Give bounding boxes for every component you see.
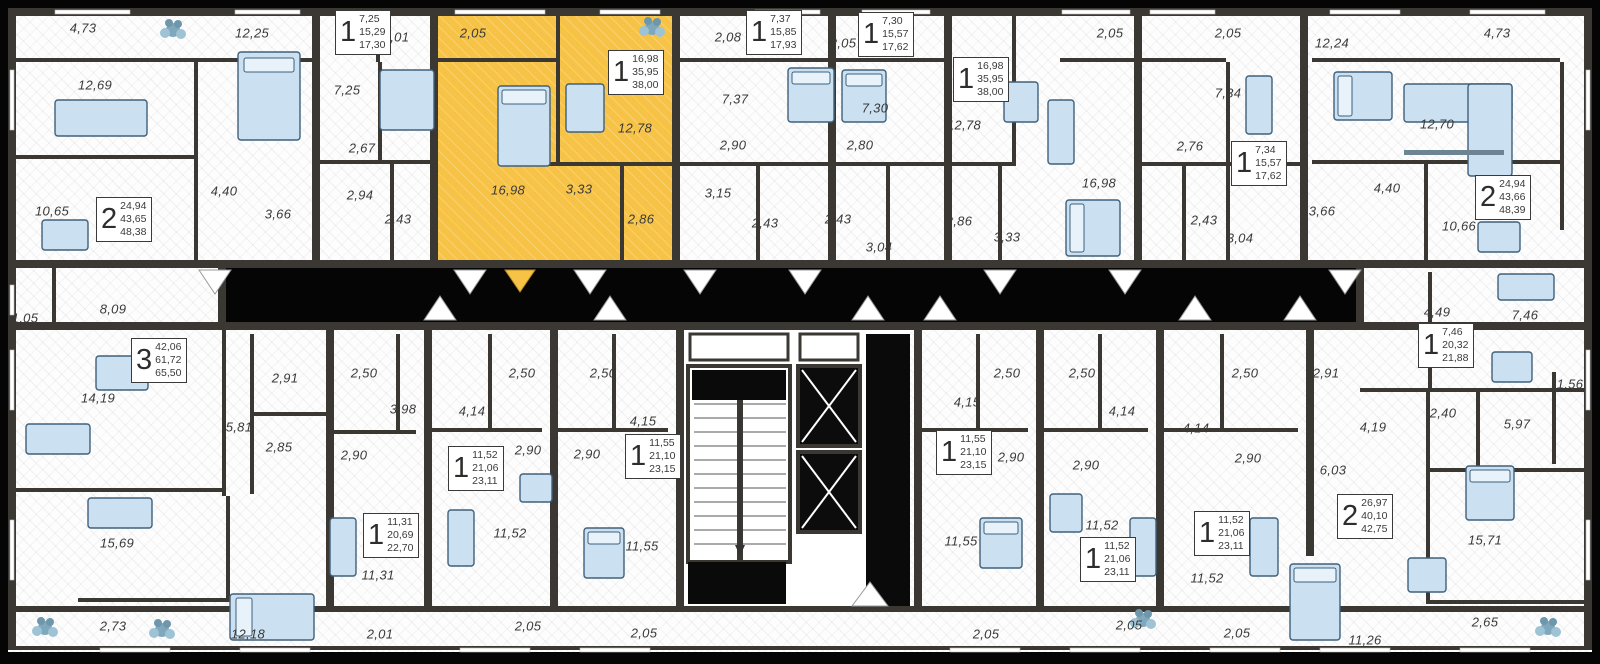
room-area-label: 2,05 xyxy=(515,619,542,634)
area-values: 7,3715,8517,93 xyxy=(770,13,796,52)
room-area-label: 2,05 xyxy=(1224,626,1251,641)
room-area-label: 4,14 xyxy=(1109,404,1136,419)
room-area-label: 11,52 xyxy=(1190,571,1223,586)
room-area-label: 2,90 xyxy=(515,443,542,458)
room-area-label: 7,25 xyxy=(334,83,361,98)
room-area-label: 8,09 xyxy=(100,302,127,317)
room-area-label: 3,98 xyxy=(390,402,417,417)
room-count: 2 xyxy=(101,205,117,234)
selected-apartment-stat-box[interactable]: 116,9835,9538,00 xyxy=(608,50,664,95)
room-area-label: 7,34 xyxy=(1215,86,1242,101)
room-area-label: 12,78 xyxy=(947,118,981,133)
room-count: 1 xyxy=(1423,331,1439,360)
room-count: 1 xyxy=(958,65,974,94)
room-area-label: 6,03 xyxy=(1320,463,1347,478)
room-count: 1 xyxy=(368,521,384,550)
apartment-stat-box[interactable]: 111,5221,0623,11 xyxy=(1080,537,1136,582)
room-area-label: 4,73 xyxy=(70,21,97,36)
room-count: 1 xyxy=(941,438,957,467)
room-area-label: 11,26 xyxy=(1348,633,1381,648)
room-area-label: 3,33 xyxy=(994,230,1021,245)
room-area-label: 7,30 xyxy=(862,101,889,116)
room-count: 1 xyxy=(1199,519,1215,548)
room-area-label: 2,05 xyxy=(460,26,487,41)
room-area-label: 2,05 xyxy=(1215,26,1242,41)
room-area-label: 2,90 xyxy=(574,447,601,462)
room-area-label: 2,85 xyxy=(266,440,293,455)
room-count: 1 xyxy=(630,442,646,471)
room-area-label: 2,86 xyxy=(946,214,973,229)
room-area-label: 4,19 xyxy=(1360,420,1387,435)
area-values: 7,3015,5717,62 xyxy=(882,15,908,54)
room-area-label: 4,73 xyxy=(1484,26,1511,41)
room-area-label: 2,80 xyxy=(847,138,874,153)
room-area-label: 12,70 xyxy=(1420,117,1454,132)
room-area-label: 11,55 xyxy=(625,539,658,554)
room-area-label: 2,08 xyxy=(715,30,742,45)
room-area-label: 4,40 xyxy=(211,184,238,199)
room-count: 1 xyxy=(1236,149,1252,178)
room-area-label: 4,49 xyxy=(1424,305,1451,320)
room-area-label: 4,14 xyxy=(459,404,486,419)
room-area-label: 2,43 xyxy=(385,212,412,227)
area-values: 16,9835,9538,00 xyxy=(632,53,658,92)
room-area-label: 14,19 xyxy=(81,391,115,406)
room-area-label: 2,67 xyxy=(349,141,376,156)
room-area-label: 2,90 xyxy=(1235,451,1262,466)
room-count: 1 xyxy=(453,454,469,483)
room-area-label: 1,56 xyxy=(1557,377,1584,392)
area-values: 24,9443,6648,39 xyxy=(1499,178,1525,217)
room-area-label: 3,33 xyxy=(566,182,593,197)
room-area-label: 2,50 xyxy=(1069,366,1096,381)
room-area-label: 11,55 xyxy=(944,534,977,549)
room-area-label: 12,24 xyxy=(1315,36,1349,51)
room-area-label: 4,15 xyxy=(954,395,981,410)
apartment-stat-box[interactable]: 17,2515,2917,30 xyxy=(335,10,391,55)
area-values: 11,5521,1023,15 xyxy=(960,433,986,472)
room-area-label: 5,81 xyxy=(226,420,253,435)
room-area-label: 2,50 xyxy=(1232,366,1259,381)
room-area-label: 3,15 xyxy=(705,186,732,201)
area-values: 11,5221,0623,11 xyxy=(1104,540,1130,579)
apartment-stat-box[interactable]: 111,3120,6922,70 xyxy=(363,513,419,558)
apartment-stat-box[interactable]: 111,5521,1023,15 xyxy=(625,434,681,479)
area-values: 16,9835,9538,00 xyxy=(977,60,1003,99)
apartment-stat-box[interactable]: 17,4620,3221,88 xyxy=(1418,323,1474,368)
apartment-stat-box[interactable]: 17,3015,5717,62 xyxy=(858,12,914,57)
room-area-label: 2,90 xyxy=(720,138,747,153)
room-area-label: 2,90 xyxy=(341,448,368,463)
room-area-label: 12,25 xyxy=(235,26,269,41)
room-area-label: 3,04 xyxy=(1227,231,1254,246)
room-area-label: 2,94 xyxy=(347,188,374,203)
room-count: 1 xyxy=(863,20,879,49)
area-values: 11,5521,1023,15 xyxy=(649,437,675,476)
room-area-label: 2,76 xyxy=(1177,139,1204,154)
room-area-label: 11,52 xyxy=(1085,518,1118,533)
room-area-label: 2,91 xyxy=(1313,366,1340,381)
room-area-label: 2,43 xyxy=(752,216,779,231)
floor-plan: 4,7312,6910,6512,252,017,252,672,943,662… xyxy=(0,0,1600,664)
room-area-label: 2,90 xyxy=(1073,458,1100,473)
room-area-label: 2,05 xyxy=(631,626,658,641)
area-values: 42,0661,7265,50 xyxy=(155,341,181,380)
room-area-label: 4,40 xyxy=(1374,181,1401,196)
room-area-label: 2,86 xyxy=(628,212,655,227)
apartment-stat-box[interactable]: 224,9443,6648,39 xyxy=(1475,175,1531,220)
apartment-stat-box[interactable]: 17,3415,5717,62 xyxy=(1231,141,1287,186)
room-area-label: 2,50 xyxy=(590,366,617,381)
room-area-label: 12,69 xyxy=(78,78,112,93)
room-area-label: 12,18 xyxy=(231,627,265,642)
room-area-label: 2,05 xyxy=(1097,26,1124,41)
room-area-label: 16,98 xyxy=(491,183,525,198)
apartment-stat-box[interactable]: 17,3715,8517,93 xyxy=(746,10,802,55)
room-area-label: 15,69 xyxy=(100,536,134,551)
room-area-label: 3,66 xyxy=(265,207,292,222)
room-count: 2 xyxy=(1342,502,1358,531)
room-area-label: 2,50 xyxy=(509,366,536,381)
room-count: 1 xyxy=(340,18,356,47)
labels-layer: 4,7312,6910,6512,252,017,252,672,943,662… xyxy=(0,0,1600,664)
room-area-label: 12,78 xyxy=(618,121,652,136)
room-area-label: 7,46 xyxy=(1512,308,1539,323)
room-area-label: 10,66 xyxy=(1442,219,1476,234)
area-values: 11,5221,0623,11 xyxy=(472,449,498,488)
apartment-stat-box[interactable]: 224,9443,6548,38 xyxy=(96,197,152,242)
room-count: 1 xyxy=(1085,545,1101,574)
room-count: 1 xyxy=(613,58,629,87)
apartment-stat-box[interactable]: 342,0661,7265,50 xyxy=(131,338,187,383)
area-values: 26,9740,1042,75 xyxy=(1361,497,1387,536)
room-area-label: 2,91 xyxy=(272,371,299,386)
room-count: 3 xyxy=(136,346,152,375)
room-area-label: 2,50 xyxy=(994,366,1021,381)
area-values: 24,9443,6548,38 xyxy=(120,200,146,239)
room-area-label: 15,71 xyxy=(1468,533,1502,548)
area-values: 7,3415,5717,62 xyxy=(1255,144,1281,183)
room-area-label: 11,31 xyxy=(361,568,394,583)
room-area-label: 2,90 xyxy=(998,450,1025,465)
room-area-label: 10,65 xyxy=(35,204,69,219)
room-count: 2 xyxy=(1480,183,1496,212)
room-area-label: 16,98 xyxy=(1082,176,1116,191)
area-values: 7,4620,3221,88 xyxy=(1442,326,1468,365)
room-area-label: 4,14 xyxy=(1183,421,1210,436)
area-values: 11,3120,6922,70 xyxy=(387,516,413,555)
room-area-label: 3,04 xyxy=(866,240,893,255)
apartment-stat-box[interactable]: 116,9835,9538,00 xyxy=(953,57,1009,102)
room-area-label: 2,40 xyxy=(1430,406,1457,421)
room-area-label: 2,43 xyxy=(825,212,852,227)
apartment-stat-box[interactable]: 111,5221,0623,11 xyxy=(448,446,504,491)
room-area-label: 2,05 xyxy=(1116,618,1143,633)
room-area-label: 2,73 xyxy=(100,619,127,634)
apartment-stat-box[interactable]: 111,5521,1023,15 xyxy=(936,430,992,475)
room-area-label: 4,15 xyxy=(630,414,657,429)
room-area-label: 3,66 xyxy=(1309,204,1336,219)
area-values: 7,2515,2917,30 xyxy=(359,13,385,52)
room-count: 1 xyxy=(751,18,767,47)
room-area-label: 1,05 xyxy=(12,311,39,326)
room-area-label: 2,43 xyxy=(1191,213,1218,228)
room-area-label: 2,05 xyxy=(973,627,1000,642)
room-area-label: 2,65 xyxy=(1472,615,1499,630)
area-values: 11,5221,0623,11 xyxy=(1218,514,1244,553)
room-area-label: 11,52 xyxy=(493,526,526,541)
room-area-label: 5,97 xyxy=(1504,417,1531,432)
room-area-label: 2,01 xyxy=(367,627,394,642)
apartment-stat-box[interactable]: 226,9740,1042,75 xyxy=(1337,494,1393,539)
room-area-label: 2,50 xyxy=(351,366,378,381)
apartment-stat-box[interactable]: 111,5221,0623,11 xyxy=(1194,511,1250,556)
room-area-label: 7,37 xyxy=(722,92,749,107)
room-area-label: 2,05 xyxy=(830,36,857,51)
